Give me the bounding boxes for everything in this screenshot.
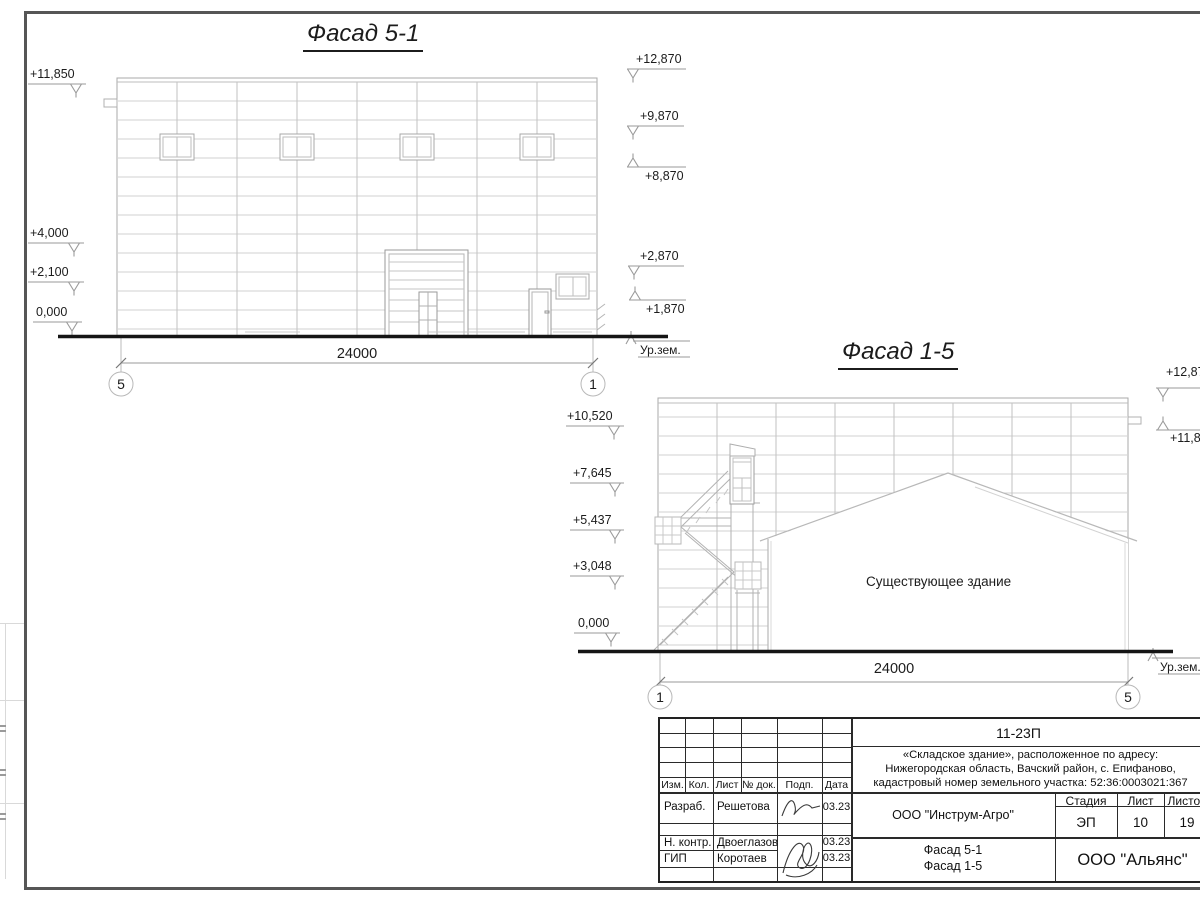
tb-subtitle-line2: Фасад 1-5 (851, 859, 1055, 873)
tb-col-podp: Подп. (777, 779, 822, 791)
dimension-label: 24000 (859, 661, 929, 677)
elevation-label: +2,870 (640, 249, 679, 263)
tb-date-developer: 03.23 (822, 801, 851, 813)
signature (779, 831, 821, 879)
tb-stage-value: ЭП (1055, 815, 1117, 830)
window (400, 134, 434, 160)
ground-level-label: Ур.зем. (640, 343, 681, 357)
tb-address-line2: Нижегородская область, Вачский район, с.… (851, 763, 1200, 775)
right-wall-projection (1128, 417, 1141, 424)
elevation-label: +12,870 (1166, 365, 1200, 379)
stair-landing-panel (735, 562, 761, 589)
corner-hatch-marks (597, 304, 605, 330)
tb-name-developer: Решетова (717, 801, 770, 813)
elevation-label: +11,850 (30, 67, 75, 81)
axis-bubble-label: 1 (648, 689, 672, 705)
stair-door (730, 455, 754, 504)
tb-subtitle-line1: Фасад 5-1 (851, 843, 1055, 857)
tb-col-data: Дата (822, 779, 851, 791)
elevation-label: +10,520 (567, 409, 613, 423)
tb-col-doc: № док. (741, 779, 777, 791)
tb-sheet-value: 10 (1117, 815, 1164, 830)
tb-name-gip: Коротаев (717, 853, 767, 865)
axis-bubble-label: 1 (581, 376, 605, 392)
sectional-gate (385, 250, 468, 336)
title-block: Изм. Кол. Лист № док. Подп. Дата Разраб.… (658, 717, 1200, 883)
window (520, 134, 554, 160)
elevation-label: +7,645 (573, 466, 612, 480)
tb-project-code: 11-23П (851, 725, 1186, 741)
facade-5-1-drawing (104, 78, 605, 336)
elevation-label: +3,048 (573, 559, 612, 573)
tb-company: ООО "Альянс" (1055, 851, 1200, 870)
elevation-label: +11,850 (1170, 431, 1200, 445)
tb-date-checker: 03.23 (822, 836, 851, 848)
elevation-label: +12,870 (636, 52, 682, 66)
tb-stage-label: Стадия (1055, 794, 1117, 808)
tb-role-developer: Разраб. (664, 801, 705, 813)
window (556, 274, 589, 299)
elevation-label: +2,100 (30, 265, 69, 279)
elevation-label: 0,000 (578, 616, 609, 630)
signature (779, 795, 821, 822)
dimension-label: 24000 (322, 346, 392, 362)
tb-organization: ООО "Инструм-Агро" (851, 808, 1055, 822)
tb-sheets-value: 19 (1164, 815, 1200, 830)
tb-address-line1: «Складское здание», расположенное по адр… (851, 749, 1200, 761)
window (280, 134, 314, 160)
tb-col-list: Лист (713, 779, 741, 791)
ground-level-label: Ур.зем. (1160, 660, 1200, 674)
facade-1-5-drawing (654, 398, 1141, 651)
left-wall-projection (104, 99, 117, 107)
tb-role-gip: ГИП (664, 853, 687, 865)
tb-col-kol: Кол. (685, 779, 713, 791)
tb-col-izm: Изм. (660, 779, 685, 791)
existing-building-label: Существующее здание (866, 574, 1011, 589)
elevation-label: +9,870 (640, 109, 679, 123)
stair-landing-panel (655, 517, 681, 544)
elevation-label: +4,000 (30, 226, 69, 240)
elevation-label: +8,870 (645, 169, 684, 183)
elevation-label: +1,870 (646, 302, 685, 316)
facade-1-5-dimension (648, 651, 1140, 709)
entrance-door (529, 289, 551, 336)
tb-address-line3: кадастровый номер земельного участка: 52… (851, 777, 1200, 789)
window (160, 134, 194, 160)
tb-name-checker: Двоеглазов (717, 837, 778, 849)
facade-5-1-dimension (109, 336, 605, 396)
facade-1-5-title: Фасад 1-5 (838, 338, 958, 370)
tb-sheet-label: Лист (1117, 794, 1164, 808)
elevation-label: 0,000 (36, 305, 67, 319)
elevation-label: +5,437 (573, 513, 612, 527)
facade-5-1-title: Фасад 5-1 (303, 20, 423, 52)
axis-bubble-label: 5 (109, 376, 133, 392)
tb-role-checker: Н. контр. (664, 837, 711, 849)
drawing-sheet: Фасад 5-1 Фасад 1-5 +11,850 +4,000 +2,10… (0, 0, 1200, 900)
tb-sheets-label: Листов (1164, 794, 1200, 808)
axis-bubble-label: 5 (1116, 689, 1140, 705)
tb-date-gip: 03.23 (822, 852, 851, 864)
